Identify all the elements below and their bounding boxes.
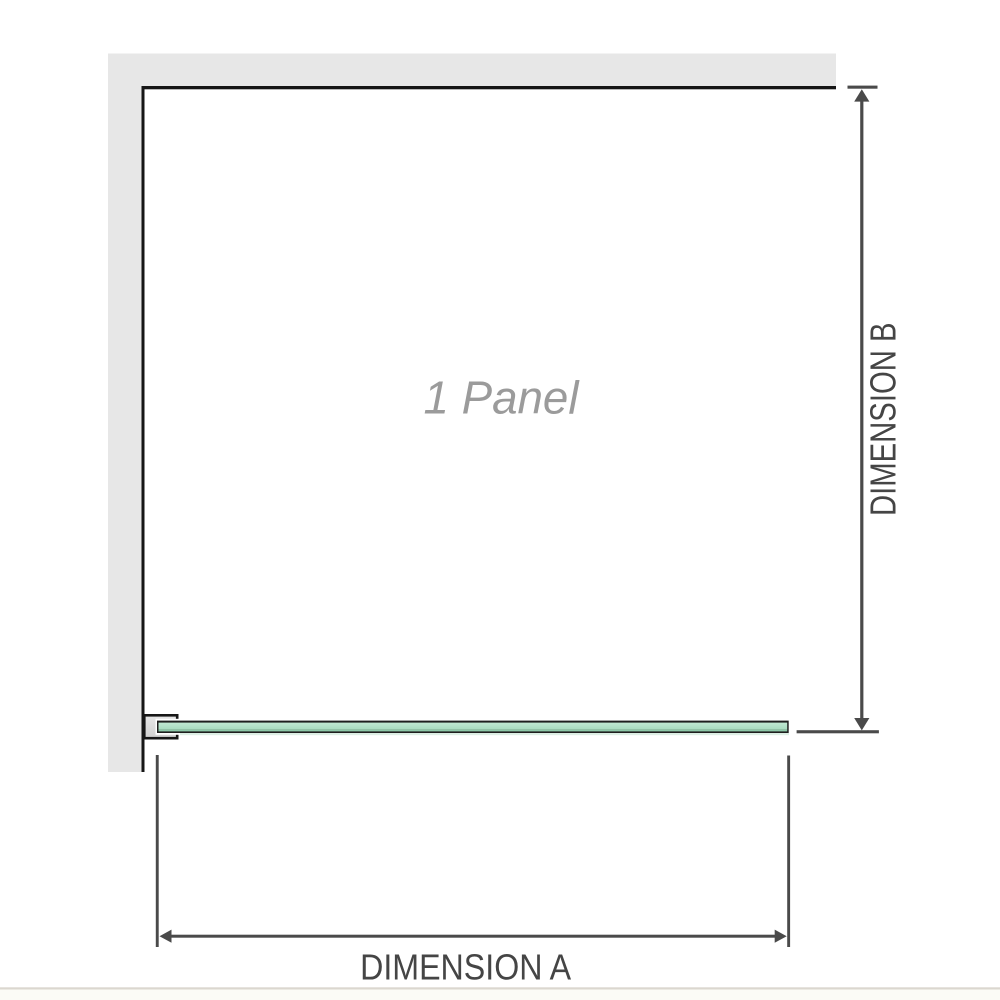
svg-text:1 Panel: 1 Panel (424, 372, 581, 424)
svg-text:DIMENSION B: DIMENSION B (863, 323, 904, 517)
svg-text:DIMENSION A: DIMENSION A (360, 947, 572, 988)
